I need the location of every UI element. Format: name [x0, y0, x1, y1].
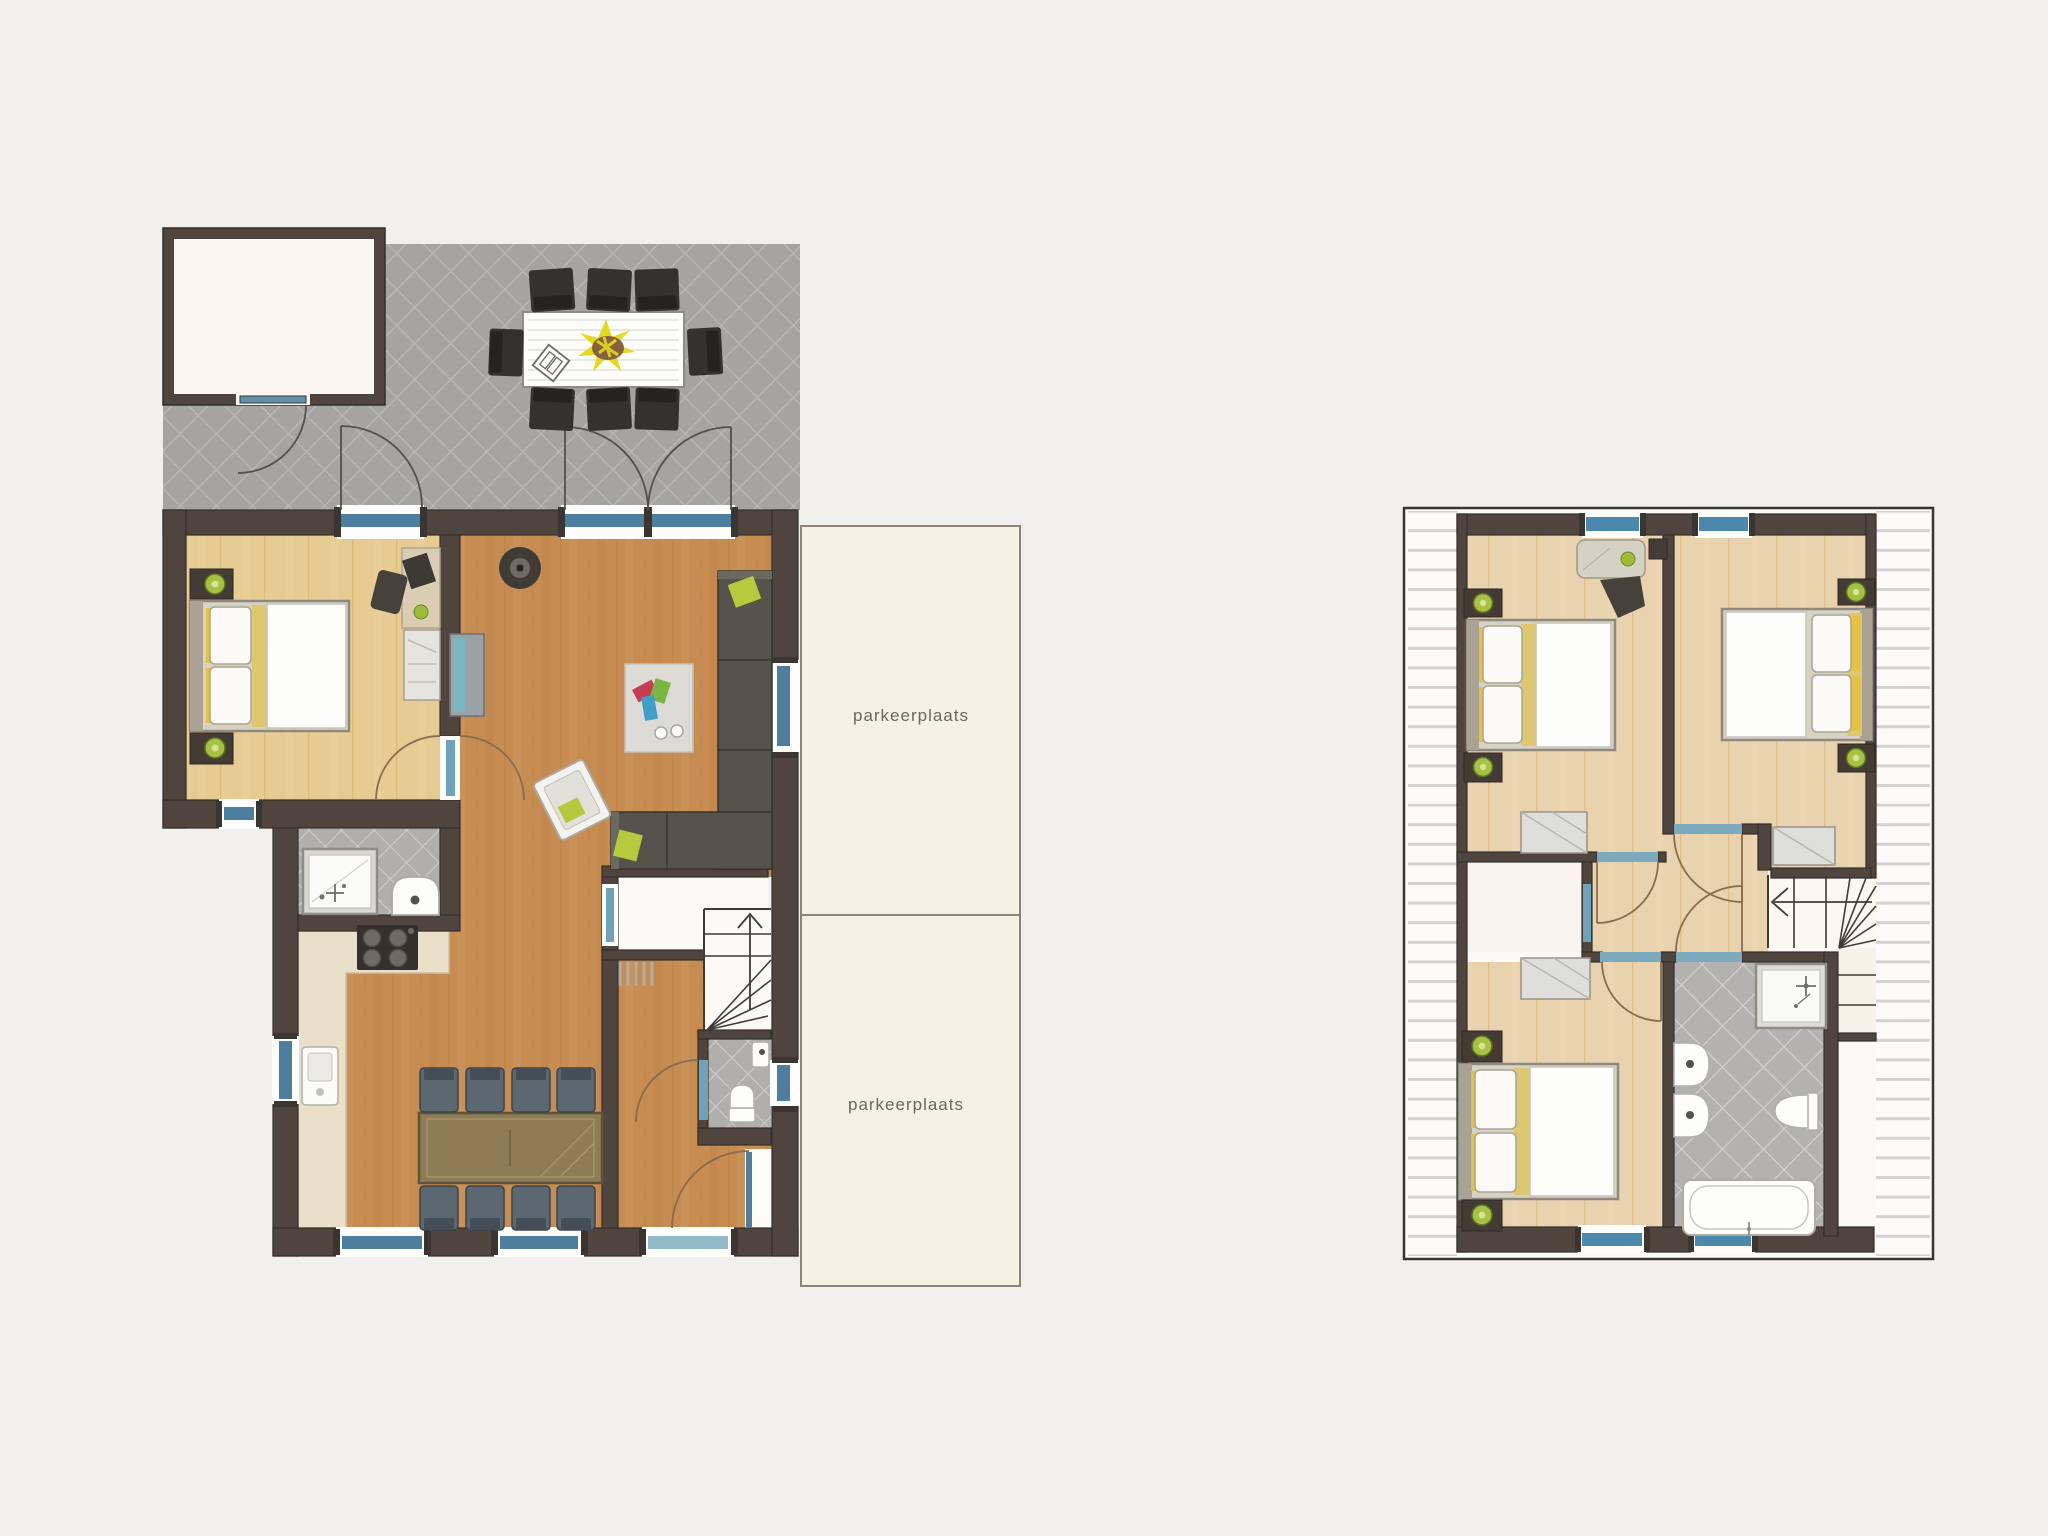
svg-text:parkeerplaats: parkeerplaats	[853, 706, 969, 725]
svg-text:parkeerplaats: parkeerplaats	[848, 1095, 964, 1114]
